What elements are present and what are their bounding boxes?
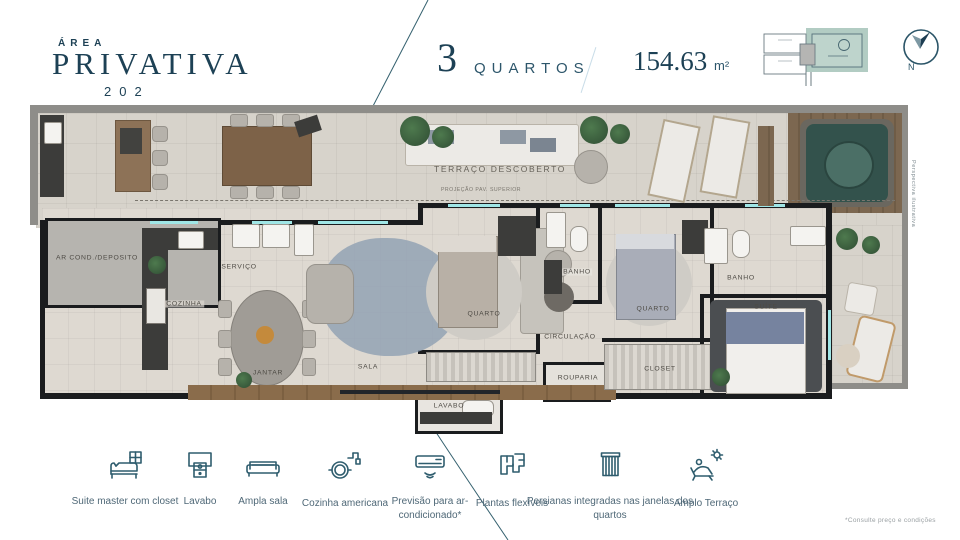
- island-cooktop: [120, 128, 142, 154]
- outer-wall-left: [30, 105, 38, 225]
- wall: [700, 294, 832, 298]
- room-label-banho2: BANHO: [727, 275, 755, 282]
- kitchen-sink: [178, 231, 204, 249]
- window: [150, 221, 198, 224]
- chair: [218, 358, 232, 376]
- wall: [826, 203, 832, 399]
- sun-lounger-icon: [686, 448, 726, 484]
- plant: [432, 126, 454, 148]
- chair: [282, 186, 300, 199]
- dryer: [262, 224, 290, 248]
- suite-duvet: [726, 312, 804, 344]
- pot-faucet-icon: [326, 448, 364, 484]
- chair: [230, 114, 248, 127]
- table-centerpiece: [256, 326, 274, 344]
- room-label-servico: SERVIÇO: [221, 264, 256, 271]
- pouf: [836, 344, 860, 368]
- washer: [232, 224, 260, 248]
- brochure-page: ÁREA PRIVATIVA 202 3 QUARTOS 154.63 m² N…: [0, 0, 960, 540]
- deck-strip: [758, 126, 774, 206]
- air-conditioner-icon: [410, 450, 450, 482]
- window: [448, 204, 500, 207]
- sofa-pillow: [500, 130, 526, 144]
- key-plan: [758, 20, 876, 92]
- bed-pillows: [616, 234, 674, 249]
- plant: [400, 116, 430, 146]
- outer-wall-right: [902, 105, 908, 389]
- room-label-terraco: TERRAÇO DESCOBERTO: [434, 164, 566, 174]
- wall: [418, 203, 423, 225]
- window: [560, 204, 590, 207]
- plant: [862, 236, 880, 254]
- chair: [230, 186, 248, 199]
- armchair: [306, 264, 354, 324]
- unit-number: 202: [104, 84, 150, 99]
- sofa-pillow: [530, 138, 556, 152]
- bedrooms-number: 3: [437, 34, 457, 81]
- projection-line: [135, 200, 895, 201]
- window: [828, 310, 831, 360]
- toilet: [570, 226, 588, 252]
- chair: [302, 330, 316, 348]
- chair: [218, 300, 232, 318]
- compass-north-label: N: [908, 62, 915, 72]
- cooktop: [146, 288, 166, 324]
- wall: [598, 203, 602, 303]
- chair: [218, 330, 232, 348]
- bed-closet-icon: [106, 450, 144, 482]
- wall: [602, 338, 714, 342]
- bed-pillows: [438, 236, 496, 252]
- room-label-sala: SALA: [358, 364, 378, 371]
- footnote: *Consulte preço e condições: [845, 517, 936, 524]
- window: [615, 204, 670, 207]
- room-label-quarto2: QUARTO: [636, 306, 669, 313]
- area-unit: m²: [714, 58, 729, 73]
- shower: [546, 212, 566, 248]
- lavabo-counter: [420, 412, 492, 424]
- chair: [256, 186, 274, 199]
- room-label-rouparia: ROUPARIA: [558, 375, 599, 382]
- wardrobe: [426, 352, 536, 382]
- chair: [302, 358, 316, 376]
- room-label-quarto1: QUARTO: [467, 311, 500, 318]
- compass-icon: N: [896, 22, 946, 74]
- plant: [236, 372, 252, 388]
- hot-tub-center: [824, 141, 874, 189]
- room-label-closet: CLOSET: [644, 366, 675, 373]
- room-label-banho1: BANHO: [562, 269, 592, 276]
- chair: [256, 114, 274, 127]
- feature-label: Amplo Terraço: [651, 497, 761, 511]
- plant: [712, 368, 730, 386]
- bar-stool: [152, 174, 168, 190]
- outer-wall-bottom-right: [830, 383, 908, 389]
- outer-wall-top: [30, 105, 908, 113]
- room-label-cozinha: COZINHA: [164, 301, 204, 308]
- area-value: 154.63: [633, 46, 707, 77]
- plant: [836, 228, 858, 250]
- page-title: PRIVATIVA: [52, 46, 253, 82]
- desk: [498, 216, 536, 256]
- projection-label: PROJEÇÃO PAV. SUPERIOR: [441, 187, 521, 193]
- room-label-suite: SUÍTE: [754, 304, 778, 311]
- tv: [340, 390, 500, 394]
- plant: [148, 256, 166, 274]
- window: [318, 221, 388, 224]
- bath-sink: [704, 228, 728, 264]
- plant: [610, 124, 630, 144]
- watermark: Perspectiva ilustrativa: [910, 160, 916, 227]
- sofa-icon: [243, 450, 283, 482]
- side-table: [574, 150, 608, 184]
- outdoor-sink: [44, 122, 62, 144]
- service-sink: [294, 224, 314, 256]
- toilet: [732, 230, 750, 258]
- room-label-lavabo: LAVABO: [434, 403, 464, 410]
- blinds-icon: [593, 450, 627, 482]
- bathtub: [790, 226, 826, 246]
- bedrooms-label: QUARTOS: [474, 60, 590, 77]
- bar-stool: [152, 150, 168, 166]
- terrace-side-table: [844, 282, 879, 317]
- room-label-arcond: AR COND./DEPOSITO: [56, 255, 138, 262]
- room-label-jantar: JANTAR: [253, 370, 283, 377]
- plant: [580, 116, 608, 144]
- feature-amplo-terraco: Amplo Terraço: [651, 448, 761, 511]
- bath-counter: [544, 260, 562, 294]
- room-label-circulacao: CIRCULAÇÃO: [544, 334, 596, 341]
- bar-stool: [152, 126, 168, 142]
